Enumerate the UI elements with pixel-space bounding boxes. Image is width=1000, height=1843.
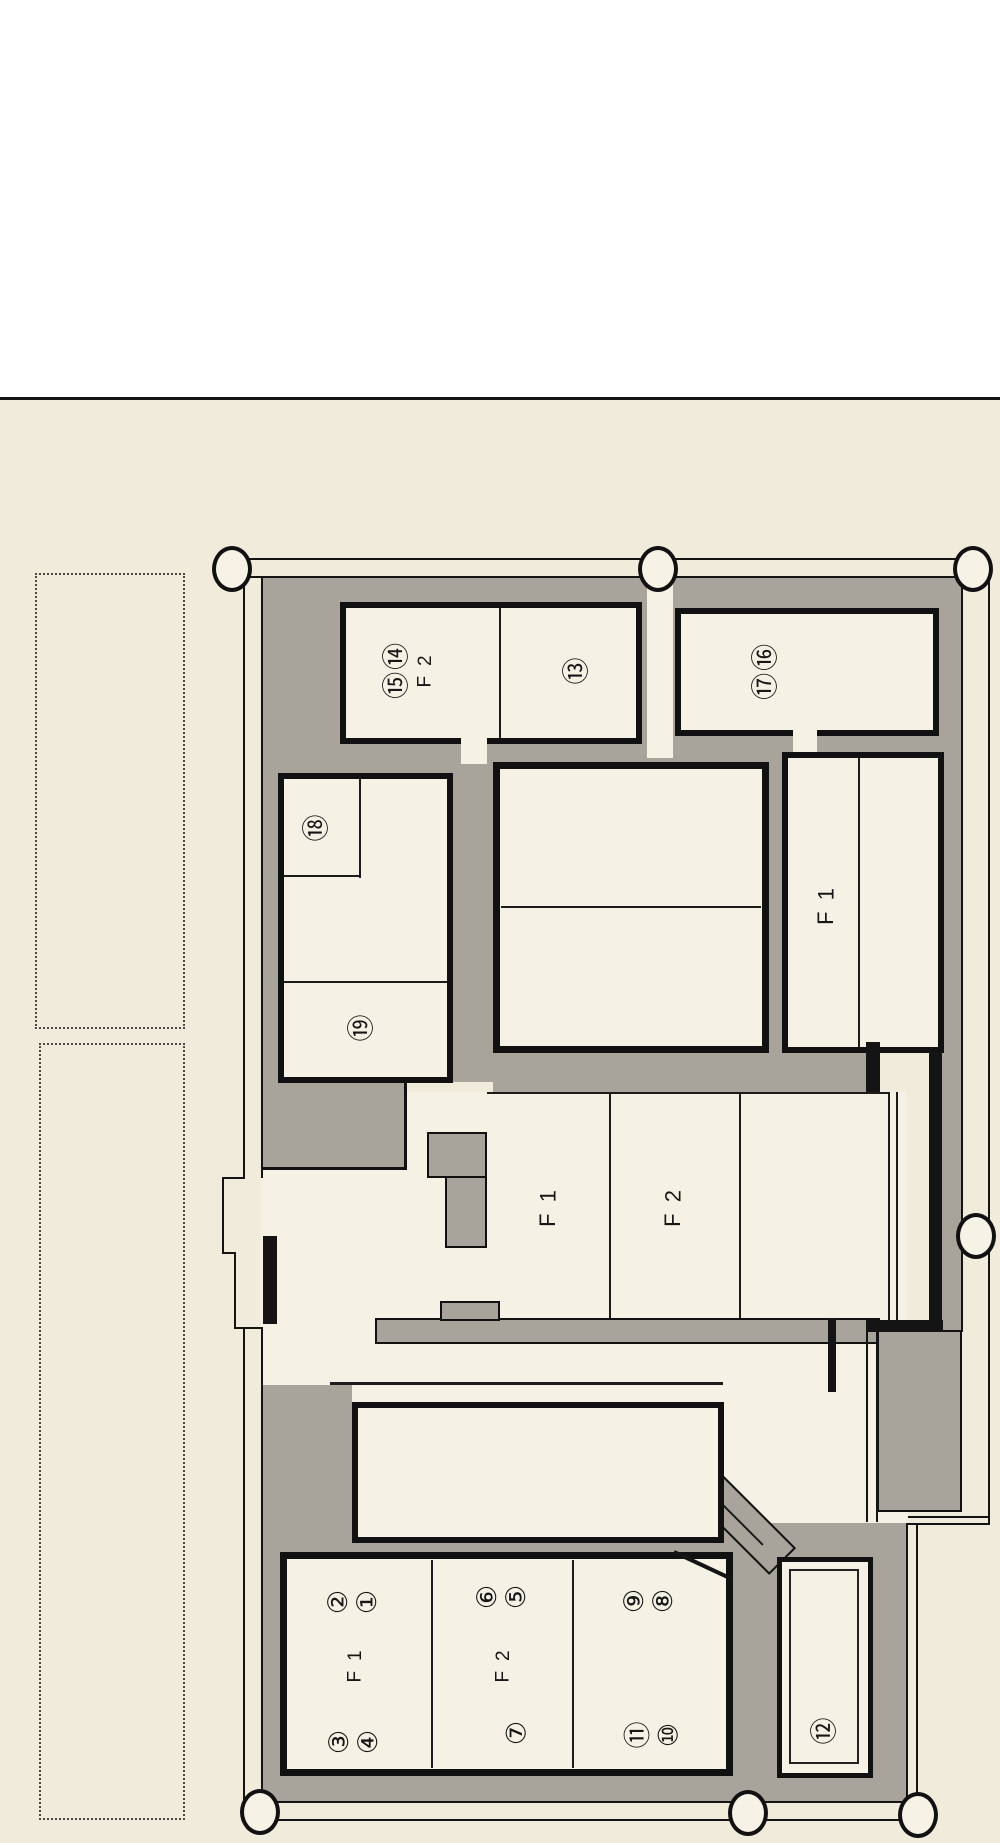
mid-band-div1 xyxy=(609,1094,611,1318)
strip-wall-stub xyxy=(866,1042,880,1092)
wall-right-low-block xyxy=(877,1330,962,1512)
column-marker-bottom-right xyxy=(898,1792,938,1838)
strip-wall-ext xyxy=(929,1052,942,1322)
notch-left xyxy=(222,1177,224,1254)
room-strip-divider xyxy=(858,758,860,1047)
room-center-divider xyxy=(501,906,761,908)
bottom-block-div1 xyxy=(431,1560,433,1768)
unit-labels-9-8: ⑨⑧ xyxy=(622,1586,675,1615)
corridor-L-wall xyxy=(866,1320,943,1332)
wall-v828 xyxy=(828,1318,836,1392)
wall-top-band xyxy=(261,576,962,604)
wall-band-bump xyxy=(440,1301,500,1321)
wall-L-upper xyxy=(427,1132,487,1178)
unit-label-7: ⑦ xyxy=(505,1718,529,1747)
unit-label-13: ⑬ xyxy=(564,656,591,685)
dashed-boundary-lower xyxy=(39,1043,185,1820)
room-top-left-divider xyxy=(499,608,501,738)
column-marker-top-left xyxy=(212,546,252,592)
corridor-line-b xyxy=(876,1332,878,1522)
notch-top xyxy=(222,1177,245,1179)
boundary-top-outer xyxy=(232,558,973,560)
corridor-line-a xyxy=(866,1332,868,1522)
mid-band-div2 xyxy=(739,1094,741,1318)
boundary-left-inner-b xyxy=(261,1327,263,1801)
wall-left-low xyxy=(261,1082,407,1170)
column-marker-top-mid xyxy=(638,546,678,592)
room-lower-hall xyxy=(352,1402,724,1543)
unit-labels-16-17: ⑯⑰ xyxy=(753,643,780,701)
room-mid-left-hdiv2 xyxy=(284,981,447,983)
unit-label-19: ⑲ xyxy=(349,1013,376,1042)
unit-label-18: ⑱ xyxy=(304,813,331,842)
column-marker-bottom-mid xyxy=(728,1790,768,1836)
mid-band-right-wall-b xyxy=(896,1092,898,1320)
unit-labels-11-10: ⑪⑩ xyxy=(625,1720,681,1749)
unit-labels-3-4: ③④ xyxy=(327,1727,380,1756)
page: { "colors": { "sheet_top": "#ffffff", "s… xyxy=(0,0,1000,1843)
boundary-rlow-outer xyxy=(916,1523,918,1815)
column-marker-top-right xyxy=(953,546,993,592)
column-marker-bottom-left xyxy=(240,1789,280,1835)
floor-label-topleft-2f: 2F xyxy=(420,650,432,691)
top-blank-area xyxy=(0,0,1000,398)
boundary-left-outer-a xyxy=(243,558,245,1178)
unit-label-12: ⑫ xyxy=(812,1716,839,1745)
boundary-rlow-inner xyxy=(906,1523,908,1815)
room-mid-left-vdiv xyxy=(359,779,361,878)
lower-area-line xyxy=(330,1382,723,1385)
dashed-boundary-upper xyxy=(35,573,185,1029)
floor-label-mid-2f: 2F xyxy=(666,1184,679,1232)
boundary-right-outer xyxy=(988,558,990,1524)
boundary-step-a xyxy=(908,1516,990,1518)
bottom-block-div2 xyxy=(572,1560,574,1768)
mid-band-top-line xyxy=(487,1092,890,1094)
floor-label-mid-1f: 1F xyxy=(541,1184,554,1232)
floor-label-bottom-2f: 2F xyxy=(498,1645,510,1686)
boundary-left-outer-b xyxy=(243,1327,245,1812)
room-top-right xyxy=(675,608,939,736)
boundary-step-b xyxy=(908,1523,990,1525)
notch-bottom xyxy=(234,1327,263,1329)
boundary-bottom-inner xyxy=(260,1801,918,1803)
corridor-top-slot xyxy=(647,578,673,758)
room-strip-right xyxy=(782,752,944,1053)
notch-left2 xyxy=(234,1252,236,1329)
entry-wall-stub xyxy=(263,1236,277,1324)
unit-labels-2-1: ②① xyxy=(326,1587,379,1616)
wall-L-lower xyxy=(445,1176,487,1248)
mid-band-right-wall-a xyxy=(888,1092,890,1320)
floor-label-bottom-1f: 1F xyxy=(350,1645,362,1686)
room-mid-left-hdiv1 xyxy=(284,875,361,877)
unit-labels-6-5: ⑥⑤ xyxy=(475,1582,528,1611)
boundary-left-inner-a xyxy=(261,576,263,1178)
wall-band-lower xyxy=(375,1318,880,1344)
boundary-top-inner xyxy=(232,576,973,578)
unit-labels-14-15: ⑭⑮ xyxy=(384,642,411,700)
boundary-bottom-outer xyxy=(260,1819,918,1821)
floor-label-strip-1f: 1F xyxy=(819,882,832,930)
column-marker-right-mid xyxy=(956,1213,996,1259)
door-gap-top-left xyxy=(461,734,487,764)
